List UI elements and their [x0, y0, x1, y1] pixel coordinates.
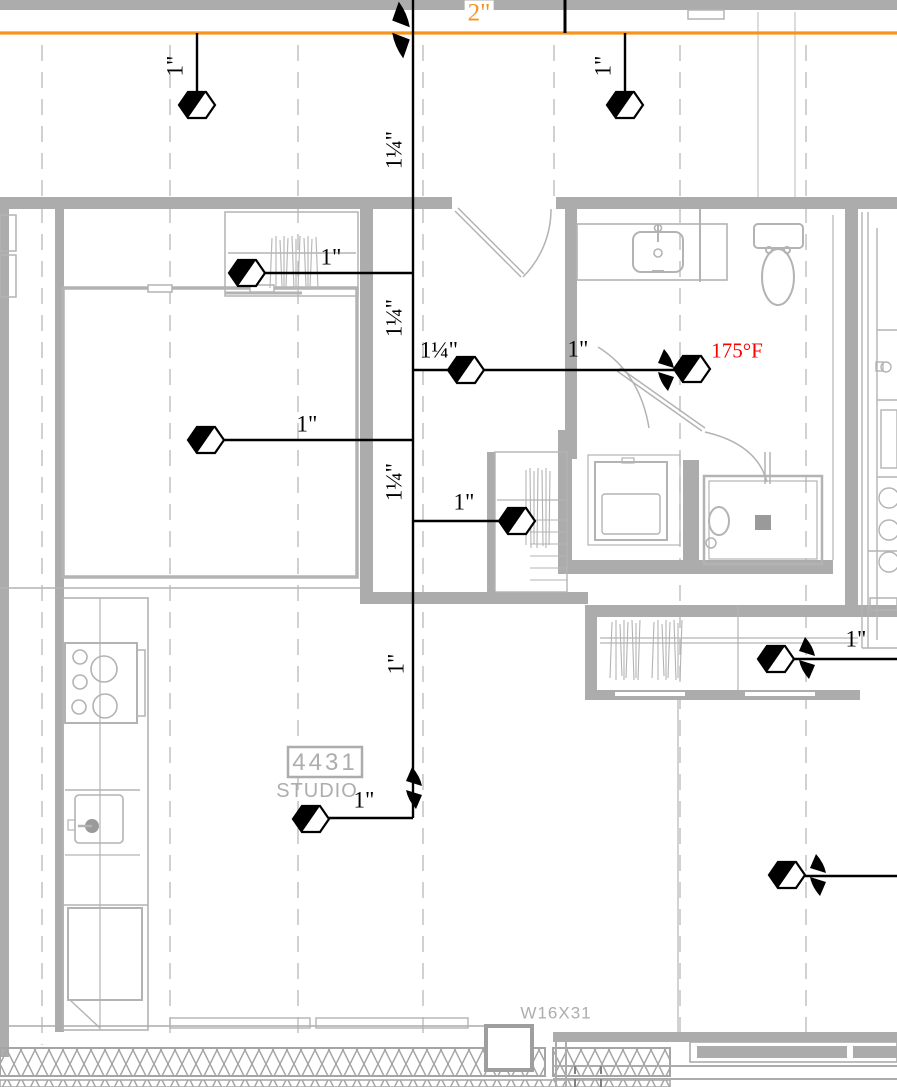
pipe-breaks [392, 2, 826, 896]
window-bar [697, 1046, 847, 1058]
pipe-size-label-closet: 1" [321, 246, 342, 269]
window-bar [853, 1046, 897, 1058]
sprinkler-head-icon [758, 646, 794, 672]
bottom-wall [0, 1018, 897, 1087]
pipe-size-label-main: 2" [465, 1, 494, 26]
kitchen [63, 598, 148, 1030]
washer [588, 455, 680, 545]
pipe-size-label-riser-mid: 1¼" [383, 299, 406, 337]
floor-plan-canvas: 4431 STUDIO W16X31 2" 1" 1" 1¼" 1¼" 1¼" … [0, 0, 897, 1087]
grid-lines-solid [758, 12, 795, 197]
hatched-wall [0, 1048, 545, 1076]
entry-door [455, 208, 551, 277]
pipe-break-icon [392, 2, 410, 59]
pipe-size-label-bath-main: 1¼" [420, 339, 458, 362]
pipe-size-label-right-upper: 1" [846, 628, 867, 651]
pipe-size-label-bedroom: 1" [297, 413, 318, 436]
bathtub [704, 476, 822, 564]
toilet [754, 224, 803, 305]
fridge [68, 908, 142, 1000]
room-number: 4431 [292, 751, 357, 775]
sprinkler-head-icon [674, 356, 710, 382]
sprinkler-head-icon [499, 508, 535, 534]
beam-label: W16X31 [520, 1005, 591, 1022]
pipe-size-label-bath-head: 1" [568, 338, 589, 361]
sprinkler-head-icon [229, 260, 265, 286]
closet-clothes-bedroom [270, 236, 318, 290]
kitchen-sink [75, 795, 123, 843]
sprinkler-head-icon [188, 427, 224, 453]
room-name: STUDIO [276, 781, 358, 801]
pipe-size-label-riser-upper: 1¼" [383, 131, 406, 169]
lower-right-unit [600, 605, 858, 1032]
range [65, 643, 137, 723]
pipe-size-label-drop-left: 1" [164, 56, 187, 77]
tub-drain [755, 515, 771, 530]
pipe-size-label-drop-right: 1" [592, 56, 615, 77]
sprinkler-head-icon [769, 862, 805, 888]
adjacent-unit-right [862, 212, 897, 648]
sprinkler-head-icon [293, 806, 329, 832]
sprinkler-head-icon [179, 92, 215, 118]
closet-clothes-lower [610, 620, 682, 680]
pipe-size-label-riser-bottom: 1" [385, 654, 408, 675]
sprinkler-head-icon [607, 92, 643, 118]
column [486, 1026, 532, 1070]
pipe-size-label-linen: 1" [454, 491, 475, 514]
pipe-size-label-studio: 1" [354, 789, 375, 812]
temperature-label: 175°F [711, 341, 763, 362]
plan-drawing [0, 0, 897, 1087]
bedroom [63, 212, 358, 577]
pipe-size-label-riser-lower: 1¼" [383, 463, 406, 501]
branch-pipes [197, 0, 897, 876]
